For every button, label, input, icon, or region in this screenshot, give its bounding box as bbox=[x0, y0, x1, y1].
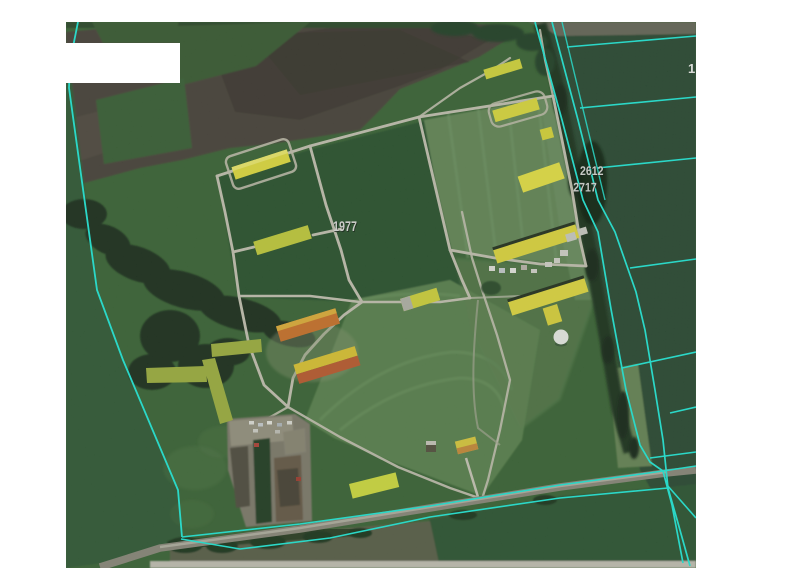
svg-text:1: 1 bbox=[688, 61, 695, 76]
svg-text:1977: 1977 bbox=[333, 218, 357, 234]
svg-text:2612: 2612 bbox=[580, 164, 604, 178]
svg-text:2717: 2717 bbox=[573, 180, 597, 194]
